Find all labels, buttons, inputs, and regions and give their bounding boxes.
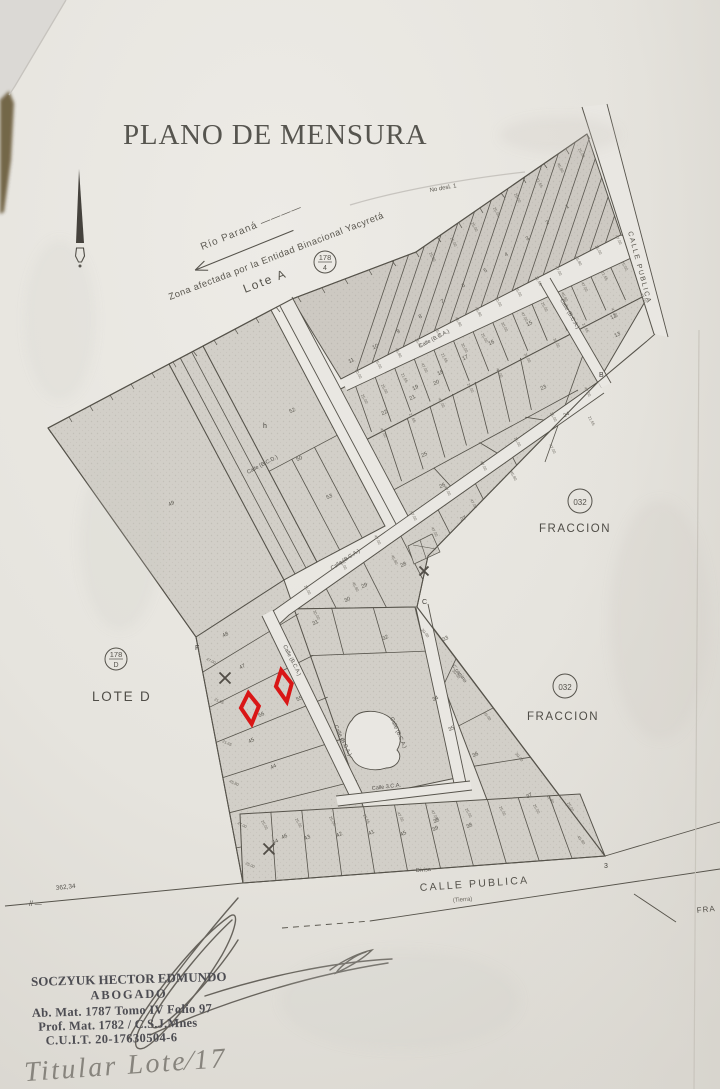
svg-text:178: 178 — [110, 650, 123, 659]
svg-text:032: 032 — [573, 498, 587, 507]
svg-text:032: 032 — [558, 683, 572, 692]
svg-text:Divisa: Divisa — [416, 867, 432, 874]
svg-text:178: 178 — [319, 253, 332, 262]
svg-text:LOTE D: LOTE D — [92, 689, 152, 704]
svg-text:4: 4 — [323, 265, 327, 272]
svg-text:F: F — [195, 645, 199, 652]
svg-text:FRACCION: FRACCION — [539, 523, 611, 535]
svg-text:3: 3 — [604, 863, 608, 870]
svg-text:ABOGADO: ABOGADO — [90, 986, 168, 1002]
svg-text:— // —: — // — — [20, 901, 42, 908]
svg-text:h: h — [263, 423, 267, 430]
svg-text:C: C — [422, 599, 427, 606]
svg-text:FRACCION: FRACCION — [527, 711, 599, 723]
svg-text:PLANO DE MENSURA: PLANO DE MENSURA — [123, 119, 427, 151]
svg-text:D: D — [113, 662, 118, 669]
svg-text:B: B — [599, 372, 604, 379]
